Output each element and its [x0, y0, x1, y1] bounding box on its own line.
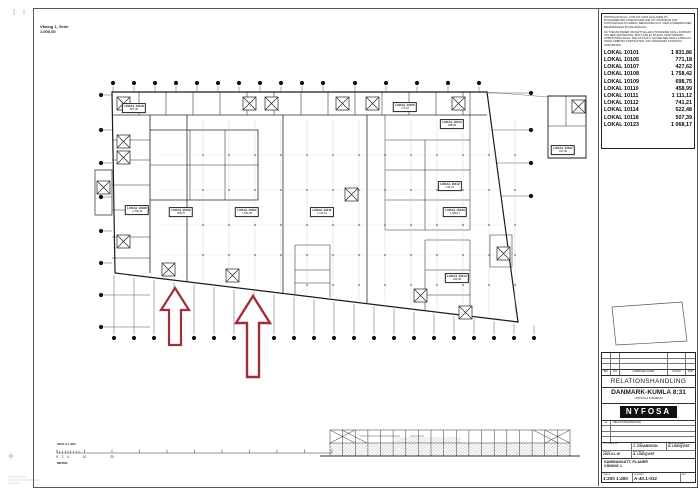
lokal-table-row: LOKAL 10112741,21 — [602, 100, 694, 107]
lokal-table-row: LOKAL 101231 068,17 — [602, 122, 694, 129]
scale-bar-label: SKALA 1:200 — [57, 442, 76, 446]
floor-plan-drawing — [0, 0, 700, 495]
lokal-table-row: LOKAL 101111 111,12 — [602, 93, 694, 100]
rev-col-datum: DATUM — [668, 370, 686, 375]
project-block: DANMARK-KUMLA 8:31 UPPSALA KOMMUN — [602, 388, 695, 404]
title-block: BET ANT ÄNDRINGEN AVSER DATUM SIGN RELAT… — [601, 352, 696, 483]
revision-entries: A RELATIONSHANDLING — [602, 421, 695, 443]
scale-number-0: 0 — [56, 455, 58, 459]
scale-number-4: 4 — [67, 455, 69, 459]
skala-value: 1:200 1:400 — [603, 476, 631, 482]
datum-value: 2020-01-15 — [603, 453, 630, 457]
rev-col-avser: ÄNDRINGEN AVSER — [620, 370, 668, 375]
nyfosa-logo: NYFOSA — [620, 406, 677, 418]
entrance-arrow-1 — [161, 288, 189, 345]
nummer-value: A-40.1-012 — [634, 476, 679, 482]
scale-number-2: 2 — [62, 455, 64, 459]
scale-number-10: 10 — [83, 455, 87, 459]
lokal-table-row: LOKAL 10114522,48 — [602, 107, 694, 114]
lokal-table-row: LOKAL 101011 831,86 — [602, 50, 694, 57]
bet-label: BET — [682, 474, 694, 476]
elevation-strip — [320, 430, 580, 456]
revision-grid — [602, 353, 695, 370]
lokal-table-row: LOKAL 10118507,39 — [602, 115, 694, 122]
lokal-table-row: LOKAL 10105771,18 — [602, 57, 694, 64]
revision-letter: A — [602, 421, 611, 425]
rev-col-ant: ANT — [611, 370, 620, 375]
revision-desc: RELATIONSHANDLING — [611, 421, 695, 425]
disclaimer-paragraph-2: DÅ TVEKAN RÅDER OM MÅTT ELLER UTFÖRANDE … — [604, 31, 692, 47]
content-line-2: VÅNING 1 — [604, 464, 693, 469]
ansvarig-value: A. LINDQVIST — [633, 453, 694, 457]
info-fields: UPPDRAG NR RITAD AV J. JOHANSSON HANDLÄG… — [602, 443, 695, 459]
drawing-sheet: Våning 1, Grön 1.000,00 LOKAL 10118507,3… — [0, 0, 700, 495]
scale-bar-unit: METER — [57, 461, 68, 465]
number-row: SKALA 1:200 1:400 NUMMER A-40.1-012 BET — [602, 473, 695, 482]
entrance-arrow-2 — [236, 296, 270, 377]
document-status: RELATIONSHANDLING — [602, 376, 695, 388]
key-plan — [612, 302, 687, 345]
corner-note-line2: 1.000,00 — [40, 30, 68, 35]
scale-bar: SKALA 1:200 0 2 4 10 20 METER — [55, 442, 345, 470]
lokal-table-row: LOKAL 10107427,62 — [602, 64, 694, 71]
handlaggare-value: Å. LINDQVIST — [668, 445, 694, 449]
uppdrag-label: UPPDRAG NR — [603, 443, 630, 446]
column-grid — [99, 81, 536, 340]
rev-col-sign: SIGN — [686, 370, 695, 375]
lokal-table-row: LOKAL 10109698,75 — [602, 79, 694, 86]
rev-col-bet: BET — [602, 370, 611, 375]
municipality: UPPSALA KOMMUN — [602, 397, 695, 401]
disclaimer-paragraph-1: RITNINGAR SKALL, FÖR ATT VARA GÄLLANDE P… — [604, 16, 692, 29]
fold-marks — [8, 9, 40, 483]
scale-number-20: 20 — [110, 455, 114, 459]
logo-row: NYFOSA — [602, 404, 695, 421]
corner-note: Våning 1, Grön 1.000,00 — [40, 25, 68, 34]
lokal-area-table: LOKAL 101011 831,86LOKAL 10105771,18LOKA… — [602, 50, 694, 129]
lokal-table-row: LOKAL 10110458,99 — [602, 86, 694, 93]
lokal-table-row: LOKAL 101081 758,42 — [602, 71, 694, 78]
ritad-value: J. JOHANSSON — [633, 445, 665, 449]
notes-panel: RITNINGAR SKALL, FÖR ATT VARA GÄLLANDE P… — [601, 13, 695, 149]
drawing-content: SAMMANSATT, PLANER VÅNING 1 — [602, 459, 695, 473]
